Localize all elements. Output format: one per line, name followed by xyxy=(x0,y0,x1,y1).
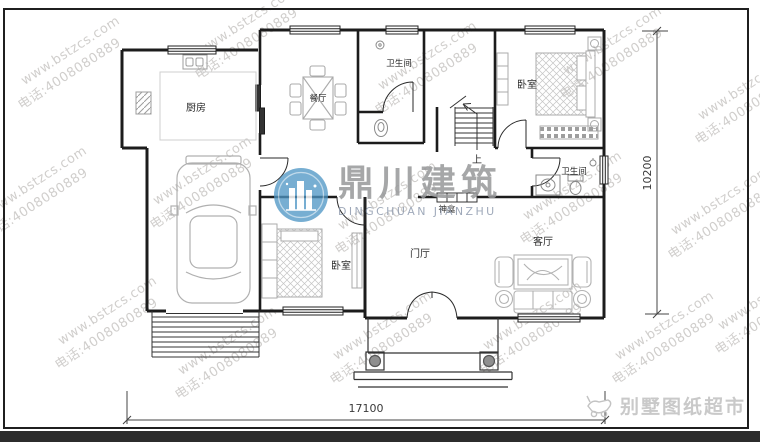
side-table-symbol xyxy=(574,291,591,308)
room-label-living: 客厅 xyxy=(533,235,553,248)
bath-mid-window xyxy=(600,156,608,184)
dimension-width: 17100 xyxy=(349,402,384,415)
floor-plan-screenshot: www.bstzcs.com电话:4008080889www.bstzcs.co… xyxy=(0,0,760,442)
dimension-height: 10200 xyxy=(641,156,654,191)
dresser-symbol xyxy=(540,126,598,139)
brand-logo-title: 鼎川建筑 xyxy=(338,166,502,202)
room-label-kitchen: 厨房 xyxy=(186,101,206,114)
coffee-table-symbol xyxy=(514,255,572,289)
kitchen-window xyxy=(168,46,216,54)
brand-logo: 鼎川建筑 DINGCHUAN JIANZHU xyxy=(272,166,502,224)
stairs-symbol xyxy=(450,96,493,150)
room-label-bath-mid: 卫生间 xyxy=(561,166,587,177)
site-logo: 别墅图纸超市 xyxy=(584,392,746,419)
bedroom-right-window xyxy=(525,26,575,34)
kitchen-fixtures xyxy=(136,55,256,140)
armchair-symbol xyxy=(495,257,513,287)
living-window xyxy=(518,314,580,322)
kitchen-sink-symbol xyxy=(183,55,207,69)
bottom-bar xyxy=(0,431,760,442)
bedroom-right-door xyxy=(498,120,526,148)
porch-column xyxy=(370,356,381,367)
room-label-bedroom-left: 卧室 xyxy=(331,259,351,272)
shower-symbol xyxy=(376,41,384,49)
dimension-lines xyxy=(123,27,669,424)
garage-steps xyxy=(152,311,259,357)
room-label-foyer: 门厅 xyxy=(410,247,430,260)
room-label-bath-top: 卫生间 xyxy=(386,58,412,69)
bath-top-window xyxy=(386,26,418,34)
fridge-symbol xyxy=(136,92,151,114)
side-table-symbol xyxy=(496,291,513,308)
bath-top-door xyxy=(383,82,413,112)
ceiling-lamp-symbol xyxy=(590,160,596,166)
brand-logo-subtitle: DINGCHUAN JIANZHU xyxy=(338,205,502,218)
sofa-symbol xyxy=(514,291,572,313)
cart-icon xyxy=(584,393,614,419)
kitchen-sliding-door xyxy=(256,85,265,134)
room-label-bedroom-right: 卧室 xyxy=(517,78,537,91)
brand-logo-icon xyxy=(272,166,330,224)
site-logo-text: 别墅图纸超市 xyxy=(620,392,746,419)
room-label-dining: 餐厅 xyxy=(309,94,327,104)
living-room-furniture xyxy=(495,255,591,313)
bath-top-fixtures xyxy=(375,41,388,137)
dining-window xyxy=(290,26,340,34)
car-symbol xyxy=(171,156,256,303)
bedroom-left-window xyxy=(283,307,343,315)
porch-column xyxy=(484,356,495,367)
armchair-symbol xyxy=(573,257,591,287)
porch xyxy=(354,318,512,387)
entrance-double-door xyxy=(407,292,457,318)
